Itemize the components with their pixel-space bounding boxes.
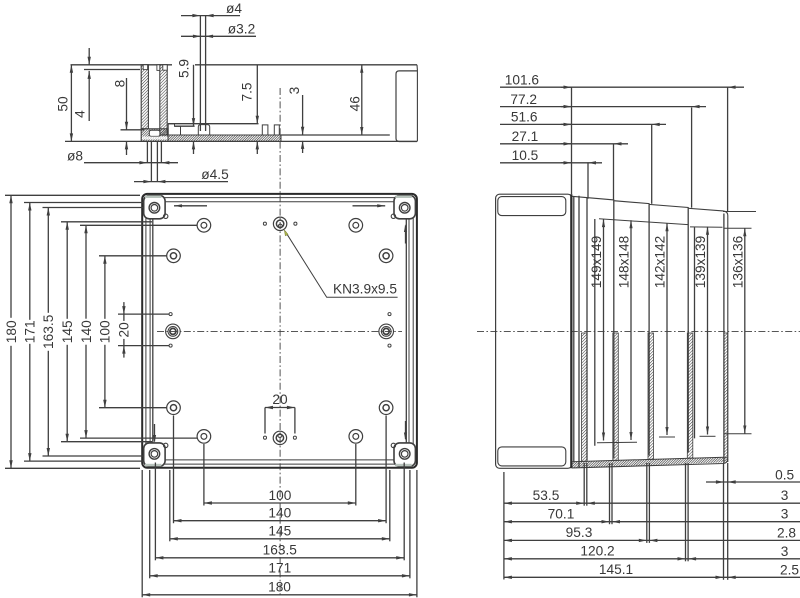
svg-text:3: 3 (781, 544, 789, 559)
svg-text:140: 140 (268, 506, 291, 521)
svg-text:142x142: 142x142 (653, 236, 668, 289)
svg-text:3: 3 (781, 488, 789, 503)
svg-text:180: 180 (4, 320, 19, 343)
svg-text:51.6: 51.6 (511, 110, 538, 125)
svg-text:171: 171 (23, 320, 38, 343)
svg-text:20: 20 (272, 392, 288, 407)
svg-text:100: 100 (98, 320, 113, 343)
svg-text:5.9: 5.9 (177, 59, 192, 78)
svg-text:50: 50 (56, 96, 71, 112)
svg-text:53.5: 53.5 (533, 488, 560, 503)
svg-text:77.2: 77.2 (510, 92, 537, 107)
svg-text:2.8: 2.8 (777, 525, 796, 540)
svg-text:3: 3 (781, 507, 789, 522)
svg-text:120.2: 120.2 (580, 544, 614, 559)
svg-text:140: 140 (79, 320, 94, 343)
svg-text:2.5: 2.5 (780, 562, 799, 577)
svg-text:145.1: 145.1 (599, 562, 633, 577)
svg-text:101.6: 101.6 (505, 72, 540, 87)
svg-text:180: 180 (268, 580, 291, 595)
svg-text:10.5: 10.5 (512, 148, 539, 163)
svg-text:139x139: 139x139 (693, 236, 708, 289)
svg-text:ø4.5: ø4.5 (201, 167, 229, 182)
svg-text:KN3.9x9.5: KN3.9x9.5 (333, 282, 397, 297)
svg-text:ø3.2: ø3.2 (228, 22, 255, 37)
svg-text:7.5: 7.5 (240, 82, 255, 101)
svg-text:163.5: 163.5 (263, 543, 298, 558)
svg-text:27.1: 27.1 (512, 129, 539, 144)
svg-text:3: 3 (287, 86, 302, 94)
svg-text:70.1: 70.1 (548, 507, 575, 522)
svg-text:100: 100 (268, 488, 291, 503)
svg-text:145: 145 (60, 320, 75, 343)
svg-text:4: 4 (72, 110, 87, 118)
svg-text:145: 145 (268, 524, 291, 539)
svg-text:8: 8 (112, 79, 127, 87)
svg-text:149x149: 149x149 (589, 236, 604, 289)
svg-text:171: 171 (268, 561, 291, 576)
svg-text:136x136: 136x136 (730, 235, 745, 288)
svg-text:ø4: ø4 (226, 1, 242, 16)
svg-text:0.5: 0.5 (775, 467, 794, 482)
svg-text:95.3: 95.3 (566, 525, 593, 540)
svg-text:ø8: ø8 (67, 149, 83, 164)
svg-text:163.5: 163.5 (41, 314, 56, 349)
svg-text:20: 20 (117, 322, 132, 338)
svg-text:46: 46 (347, 96, 362, 112)
svg-text:148x148: 148x148 (617, 235, 632, 288)
